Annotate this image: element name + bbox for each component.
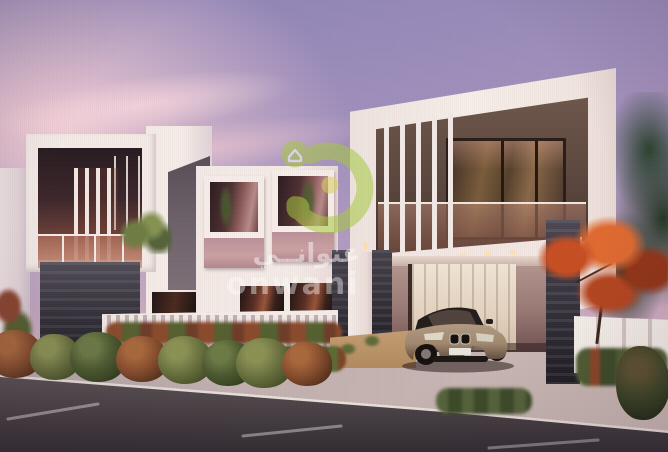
watermark-arabic-text: عنوانــي (230, 241, 360, 267)
logo-yellow-dot (322, 177, 339, 194)
corner-bush-right (616, 346, 668, 420)
car-kidney-grille-left (450, 334, 459, 344)
hedge-bush (282, 342, 332, 386)
car-mirror (486, 319, 493, 324)
watermark-logo (264, 126, 380, 248)
parked-suv (398, 290, 520, 374)
villa-rendering: عنوانــي onwani (0, 0, 668, 452)
window-plant-reflection (219, 187, 233, 230)
car-license-plate (449, 348, 471, 355)
car-lower-intake (432, 356, 488, 362)
red-flowering-tree (538, 212, 668, 342)
driveway-edge-shrubs (436, 388, 532, 414)
right-villa-fins (384, 113, 460, 266)
downlight (509, 250, 517, 255)
car-kidney-grille-right (461, 334, 470, 344)
balcony-plant (120, 210, 172, 254)
watermark-latin-text: onwani (226, 270, 360, 300)
grass-tuft (364, 336, 380, 346)
logo-house-badge (282, 141, 309, 168)
logo-tail-blob (287, 197, 310, 220)
bay-1-window (210, 182, 258, 232)
car-rim-left (421, 349, 431, 359)
